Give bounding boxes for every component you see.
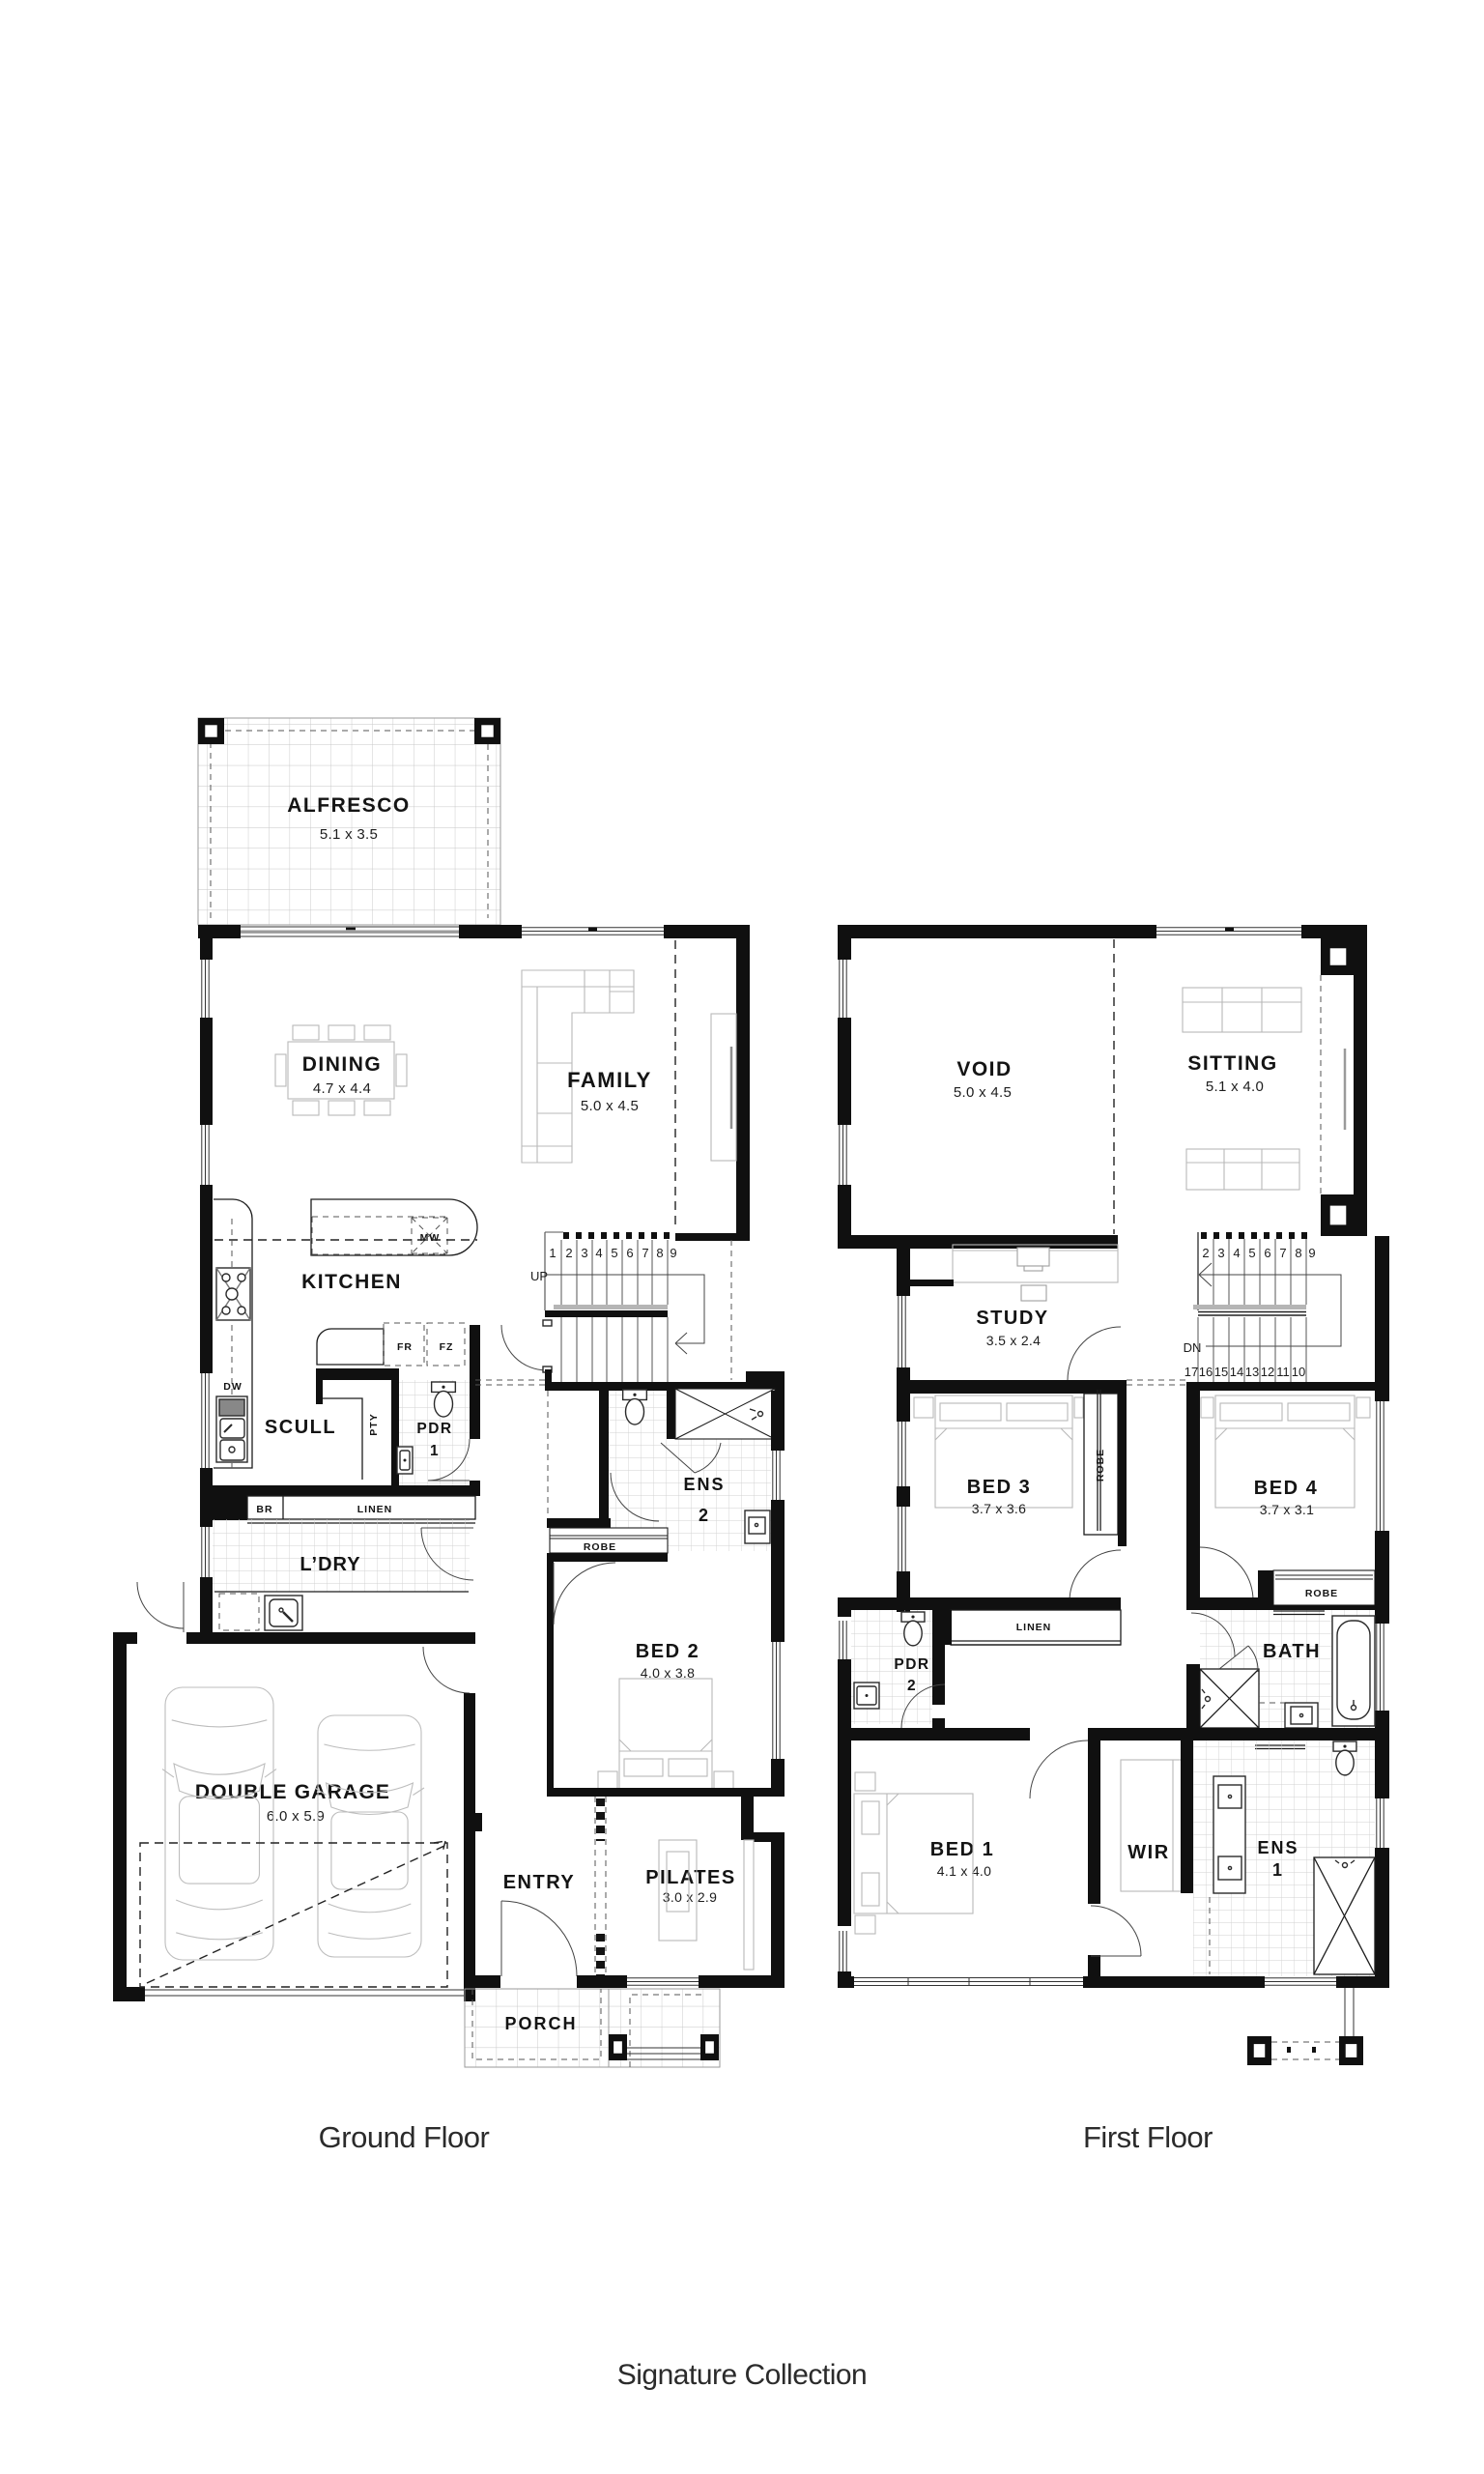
svg-text:ROBE: ROBE — [1305, 1588, 1338, 1599]
svg-text:STUDY: STUDY — [976, 1308, 1048, 1329]
svg-text:11: 11 — [1276, 1365, 1290, 1379]
svg-text:3.7 x 3.6: 3.7 x 3.6 — [972, 1501, 1026, 1516]
svg-text:5: 5 — [1248, 1246, 1255, 1260]
svg-text:15: 15 — [1214, 1365, 1228, 1379]
svg-text:DW: DW — [223, 1381, 243, 1393]
svg-text:8: 8 — [656, 1246, 663, 1260]
svg-text:PORCH: PORCH — [504, 2014, 577, 2033]
svg-text:BED 3: BED 3 — [967, 1477, 1031, 1498]
svg-text:2: 2 — [1202, 1246, 1209, 1260]
svg-text:BED 2: BED 2 — [636, 1641, 699, 1662]
svg-text:PTY: PTY — [368, 1413, 380, 1435]
svg-text:ROBE: ROBE — [1095, 1449, 1106, 1482]
svg-text:KITCHEN: KITCHEN — [301, 1271, 402, 1293]
svg-text:4.1 x 4.0: 4.1 x 4.0 — [937, 1863, 991, 1879]
svg-text:1: 1 — [430, 1443, 440, 1459]
svg-text:5.0 x 4.5: 5.0 x 4.5 — [581, 1098, 639, 1114]
svg-text:Signature Collection: Signature Collection — [617, 2359, 868, 2391]
svg-text:DN: DN — [1184, 1340, 1202, 1355]
svg-text:FZ: FZ — [440, 1341, 454, 1353]
svg-text:4: 4 — [1233, 1246, 1240, 1260]
svg-text:ROBE: ROBE — [584, 1541, 616, 1553]
svg-text:LINEN: LINEN — [1016, 1622, 1052, 1633]
svg-text:16: 16 — [1199, 1365, 1213, 1379]
svg-text:ENS: ENS — [1257, 1838, 1298, 1857]
svg-text:1: 1 — [1272, 1860, 1284, 1880]
svg-text:9: 9 — [1308, 1246, 1315, 1260]
svg-text:5.1 x 3.5: 5.1 x 3.5 — [320, 826, 378, 843]
svg-text:4: 4 — [595, 1246, 602, 1260]
svg-text:14: 14 — [1230, 1365, 1243, 1379]
svg-text:BR: BR — [256, 1504, 272, 1515]
svg-text:1: 1 — [549, 1246, 556, 1260]
svg-text:2: 2 — [565, 1246, 572, 1260]
svg-text:SCULL: SCULL — [265, 1417, 336, 1438]
svg-text:L’DRY: L’DRY — [300, 1554, 360, 1575]
svg-text:13: 13 — [1245, 1365, 1259, 1379]
svg-text:5: 5 — [611, 1246, 617, 1260]
svg-text:SITTING: SITTING — [1187, 1052, 1277, 1075]
svg-text:PDR: PDR — [416, 1421, 452, 1437]
svg-text:ENTRY: ENTRY — [503, 1872, 576, 1893]
svg-text:17: 17 — [1184, 1365, 1198, 1379]
svg-text:Ground Floor: Ground Floor — [319, 2120, 490, 2154]
svg-text:5.1 x 4.0: 5.1 x 4.0 — [1206, 1079, 1264, 1095]
svg-text:FAMILY: FAMILY — [567, 1068, 652, 1092]
svg-text:ALFRESCO: ALFRESCO — [287, 794, 411, 817]
svg-text:First Floor: First Floor — [1083, 2120, 1213, 2154]
svg-text:9: 9 — [670, 1246, 676, 1260]
svg-text:6: 6 — [1264, 1246, 1270, 1260]
svg-text:DINING: DINING — [302, 1053, 383, 1076]
svg-text:3.0 x 2.9: 3.0 x 2.9 — [663, 1889, 717, 1905]
svg-text:2: 2 — [699, 1506, 710, 1525]
svg-text:3.7 x 3.1: 3.7 x 3.1 — [1260, 1502, 1314, 1517]
svg-text:BED 1: BED 1 — [930, 1839, 994, 1860]
svg-text:6.0 x 5.9: 6.0 x 5.9 — [267, 1808, 325, 1825]
svg-text:LINEN: LINEN — [357, 1504, 393, 1515]
svg-text:MW: MW — [420, 1232, 441, 1244]
svg-text:3: 3 — [581, 1246, 587, 1260]
svg-text:VOID: VOID — [956, 1058, 1012, 1080]
svg-text:ENS: ENS — [683, 1475, 725, 1494]
svg-text:3.5 x 2.4: 3.5 x 2.4 — [986, 1333, 1041, 1348]
svg-text:PDR: PDR — [894, 1656, 929, 1673]
svg-text:10: 10 — [1292, 1365, 1305, 1379]
svg-text:BATH: BATH — [1263, 1641, 1321, 1662]
svg-text:8: 8 — [1295, 1246, 1301, 1260]
svg-text:3: 3 — [1217, 1246, 1224, 1260]
svg-text:UP: UP — [530, 1269, 548, 1283]
svg-text:6: 6 — [626, 1246, 633, 1260]
svg-text:4.7 x 4.4: 4.7 x 4.4 — [313, 1080, 371, 1097]
svg-text:WIR: WIR — [1127, 1842, 1169, 1863]
svg-text:7: 7 — [642, 1246, 648, 1260]
svg-text:7: 7 — [1279, 1246, 1286, 1260]
svg-text:5.0 x 4.5: 5.0 x 4.5 — [954, 1084, 1012, 1101]
svg-text:FR: FR — [397, 1341, 413, 1353]
svg-text:BED 4: BED 4 — [1254, 1478, 1318, 1499]
svg-text:12: 12 — [1261, 1365, 1274, 1379]
svg-text:2: 2 — [907, 1678, 917, 1694]
